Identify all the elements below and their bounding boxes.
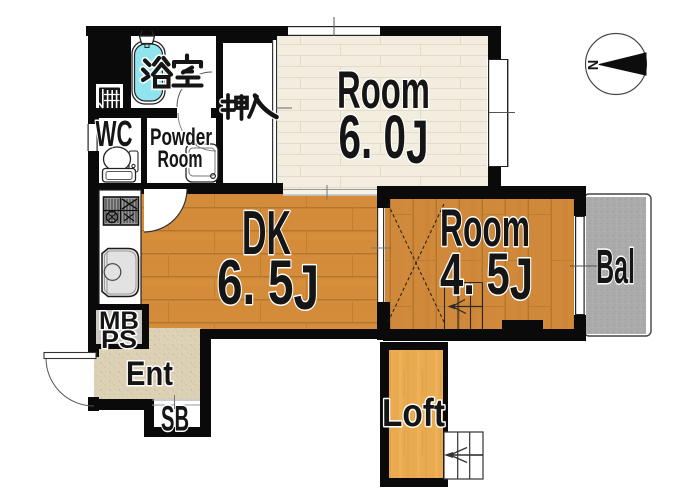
- svg-text:6. 0J: 6. 0J: [339, 103, 429, 176]
- svg-text:4. 5J: 4. 5J: [440, 242, 533, 312]
- svg-text:WC: WC: [96, 113, 133, 154]
- svg-text:N: N: [584, 60, 600, 70]
- svg-text:Loft: Loft: [382, 392, 445, 435]
- svg-text:SB: SB: [161, 400, 189, 439]
- svg-text:PS: PS: [101, 326, 137, 354]
- svg-text:Room: Room: [158, 146, 203, 173]
- svg-text:6. 5J: 6. 5J: [217, 248, 319, 323]
- svg-text:Ent: Ent: [126, 355, 173, 393]
- svg-text:Bal: Bal: [596, 241, 635, 294]
